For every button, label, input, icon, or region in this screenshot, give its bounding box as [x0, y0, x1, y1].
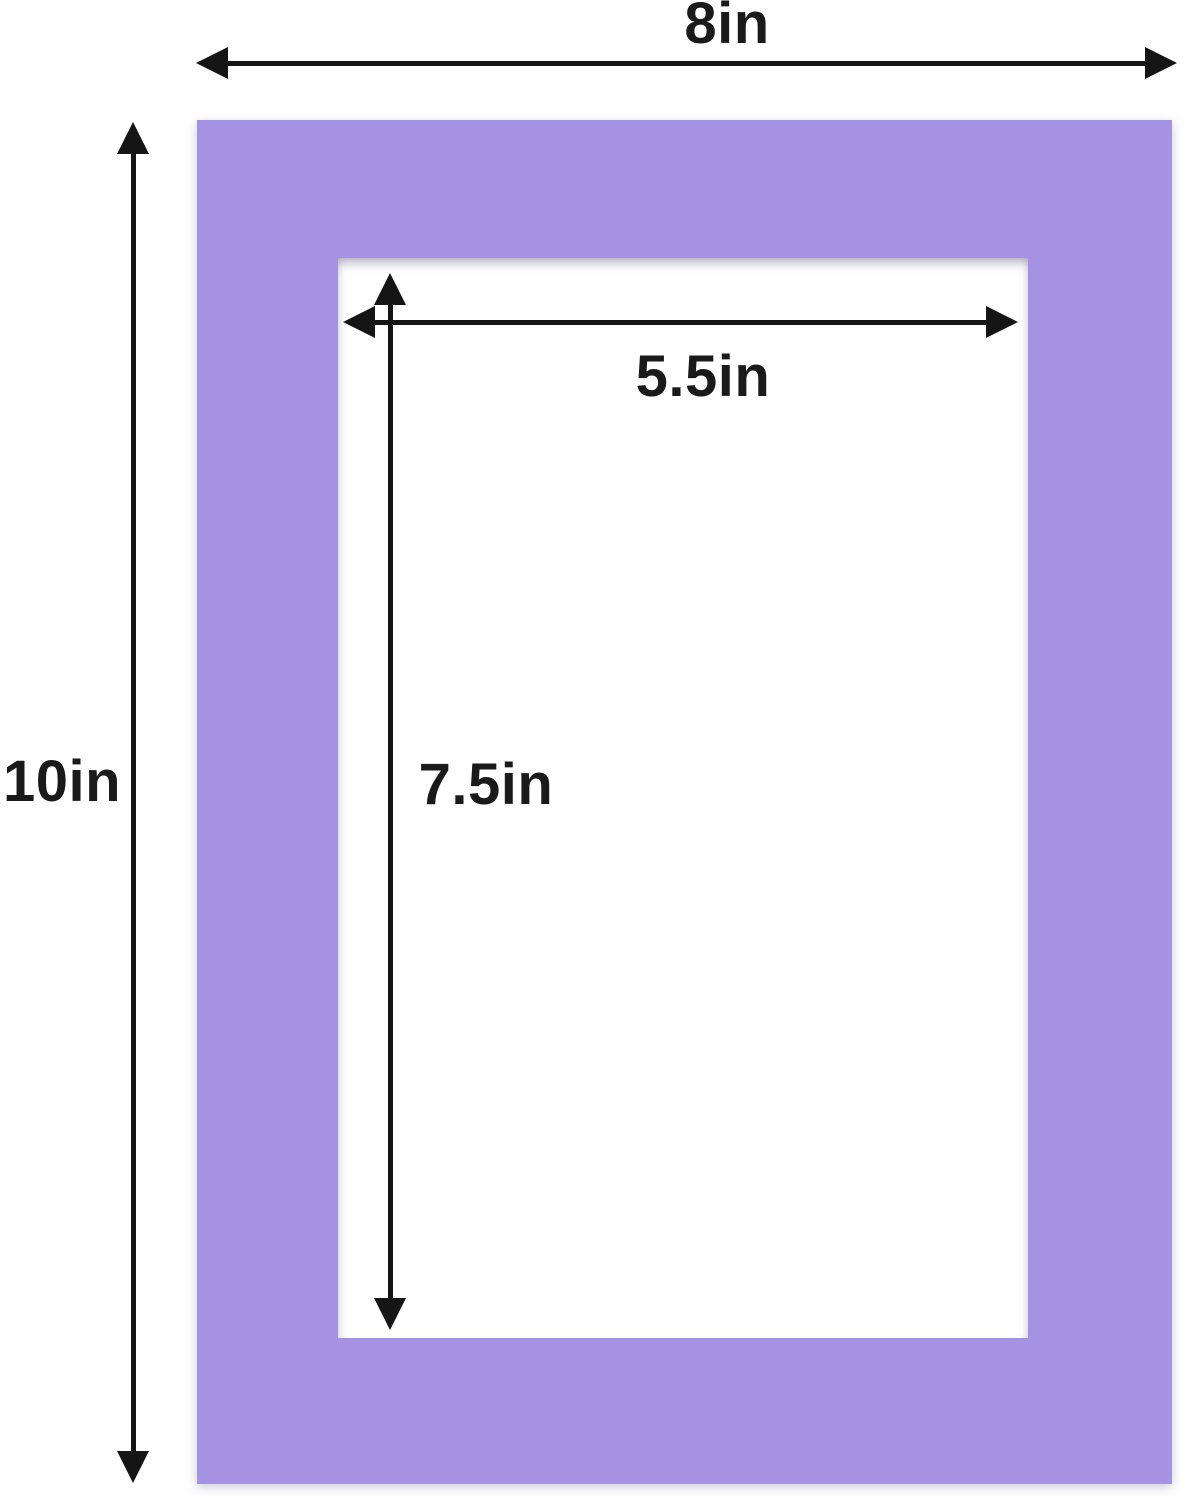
inner-height-arrow	[374, 273, 406, 1330]
arrow-down-icon	[374, 1298, 406, 1330]
outer-height-label: 10in	[3, 753, 121, 811]
arrow-shaft	[223, 61, 1150, 66]
arrow-shaft	[370, 320, 991, 325]
inner-width-arrow	[343, 306, 1018, 338]
inner-width-label: 5.5in	[636, 348, 771, 406]
inner-height-label: 7.5in	[419, 756, 554, 814]
arrow-shaft	[131, 149, 136, 1456]
outer-height-arrow	[117, 122, 149, 1483]
outer-width-arrow	[196, 47, 1177, 79]
arrow-right-icon	[1145, 47, 1177, 79]
arrow-shaft	[388, 300, 393, 1303]
arrow-down-icon	[117, 1451, 149, 1483]
mat-dimension-diagram: 8in 10in 5.5in 7.5in	[0, 0, 1184, 1500]
outer-width-label: 8in	[684, 0, 769, 53]
arrow-right-icon	[986, 306, 1018, 338]
